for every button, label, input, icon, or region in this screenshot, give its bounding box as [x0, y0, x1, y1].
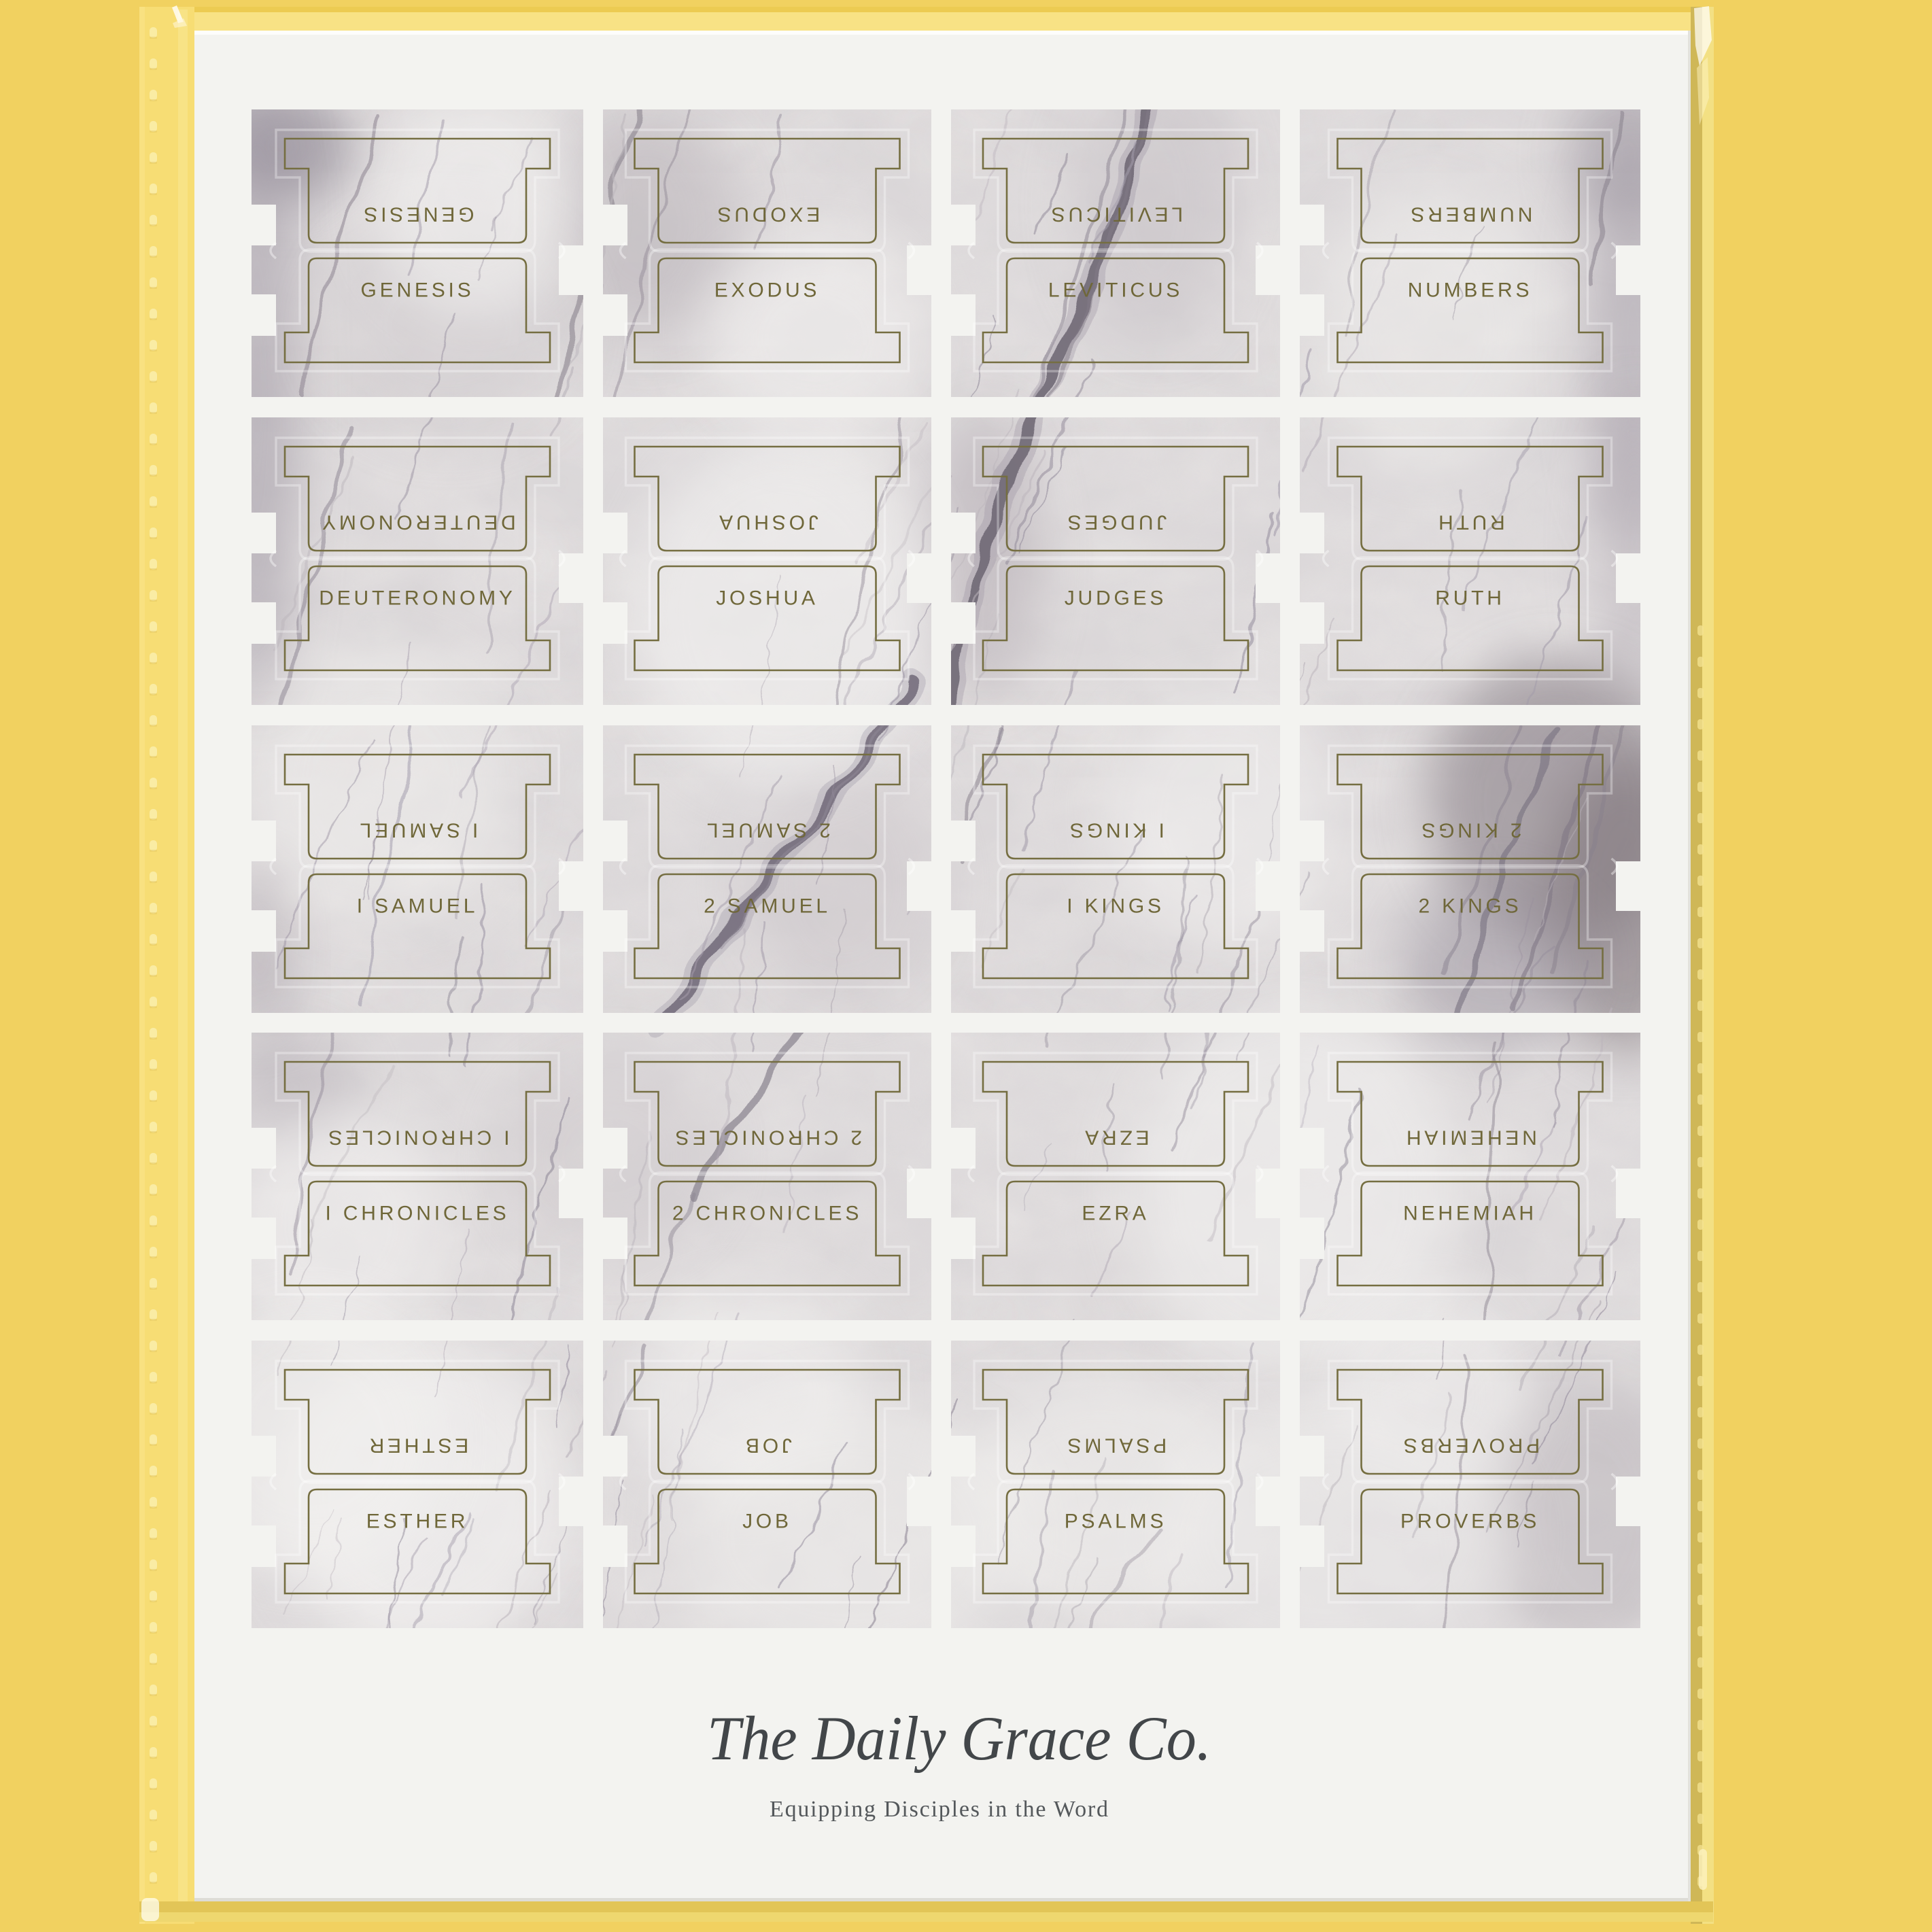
svg-text:EXODUS: EXODUS — [714, 203, 821, 226]
svg-text:JOSHUA: JOSHUA — [716, 511, 818, 534]
svg-text:LEVITICUS: LEVITICUS — [1048, 279, 1183, 302]
svg-text:LEVITICUS: LEVITICUS — [1048, 203, 1183, 226]
svg-text:ESTHER: ESTHER — [366, 1434, 469, 1457]
svg-text:JOSHUA: JOSHUA — [716, 587, 818, 610]
svg-text:PROVERBS: PROVERBS — [1400, 1511, 1540, 1533]
svg-text:JOB: JOB — [742, 1434, 792, 1457]
svg-text:I SAMUEL: I SAMUEL — [357, 895, 478, 918]
svg-text:PSALMS: PSALMS — [1065, 1434, 1167, 1457]
svg-text:PROVERBS: PROVERBS — [1400, 1434, 1540, 1457]
svg-text:GENESIS: GENESIS — [361, 203, 475, 226]
svg-text:EXODUS: EXODUS — [714, 279, 821, 302]
svg-text:I KINGS: I KINGS — [1067, 895, 1165, 918]
svg-text:I CHRONICLES: I CHRONICLES — [326, 1203, 510, 1225]
svg-text:JOB: JOB — [742, 1511, 792, 1533]
svg-text:NEHEMIAH: NEHEMIAH — [1403, 1203, 1537, 1225]
svg-text:2 CHRONICLES: 2 CHRONICLES — [672, 1203, 862, 1225]
svg-text:I KINGS: I KINGS — [1067, 819, 1165, 842]
svg-text:NUMBERS: NUMBERS — [1408, 203, 1533, 226]
svg-text:EZRA: EZRA — [1082, 1203, 1149, 1225]
svg-text:PSALMS: PSALMS — [1065, 1511, 1167, 1533]
svg-text:EZRA: EZRA — [1082, 1126, 1149, 1149]
svg-text:2 KINGS: 2 KINGS — [1419, 895, 1522, 918]
svg-text:I CHRONICLES: I CHRONICLES — [326, 1126, 510, 1149]
svg-text:Equipping Disciples in the Wor: Equipping Disciples in the Word — [770, 1797, 1108, 1822]
svg-text:The Daily Grace Co.: The Daily Grace Co. — [707, 1704, 1211, 1773]
svg-text:I SAMUEL: I SAMUEL — [357, 819, 478, 842]
svg-text:DEUTERONOMY: DEUTERONOMY — [319, 511, 515, 534]
svg-text:JUDGES: JUDGES — [1065, 511, 1167, 534]
svg-text:NEHEMIAH: NEHEMIAH — [1403, 1126, 1537, 1149]
svg-text:2 SAMUEL: 2 SAMUEL — [704, 819, 831, 842]
svg-text:2 CHRONICLES: 2 CHRONICLES — [672, 1126, 862, 1149]
svg-text:GENESIS: GENESIS — [361, 279, 475, 302]
svg-text:RUTH: RUTH — [1435, 587, 1505, 610]
svg-text:2 SAMUEL: 2 SAMUEL — [704, 895, 831, 918]
svg-text:NUMBERS: NUMBERS — [1408, 279, 1533, 302]
svg-text:ESTHER: ESTHER — [366, 1511, 469, 1533]
svg-text:DEUTERONOMY: DEUTERONOMY — [319, 587, 515, 610]
svg-text:JUDGES: JUDGES — [1065, 587, 1167, 610]
svg-text:2 KINGS: 2 KINGS — [1419, 819, 1522, 842]
svg-text:RUTH: RUTH — [1435, 511, 1505, 534]
